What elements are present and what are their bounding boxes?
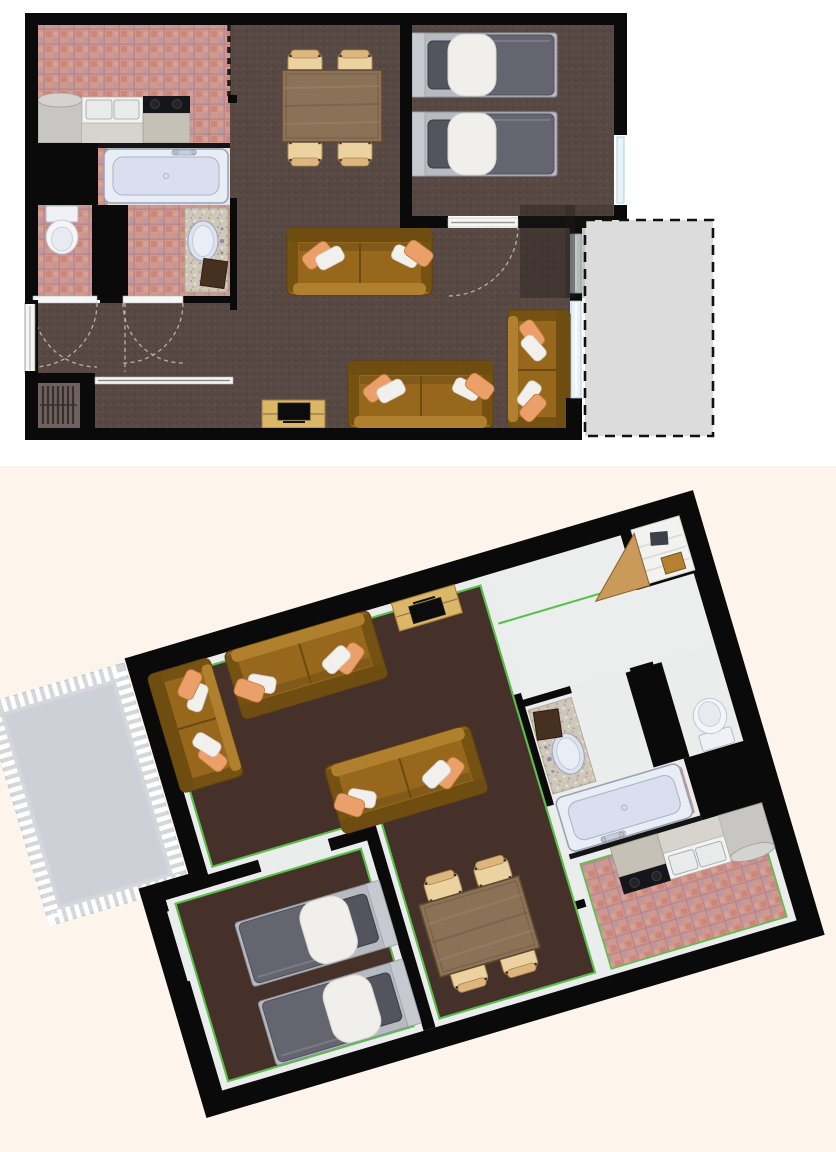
floor-plan-viewer [0,0,836,1152]
view-plan-2d [0,0,836,460]
balcony-floor-2d [585,220,713,436]
view-plan-3d [0,466,836,1152]
floor-plan-canvas [0,0,836,1152]
door-cap [25,300,38,304]
shoes [650,531,669,546]
bedroom-window[interactable] [617,137,624,203]
toilet-door-threshold[interactable] [33,296,97,303]
door-cap [25,371,38,375]
washroom-door-threshold[interactable] [123,296,183,303]
